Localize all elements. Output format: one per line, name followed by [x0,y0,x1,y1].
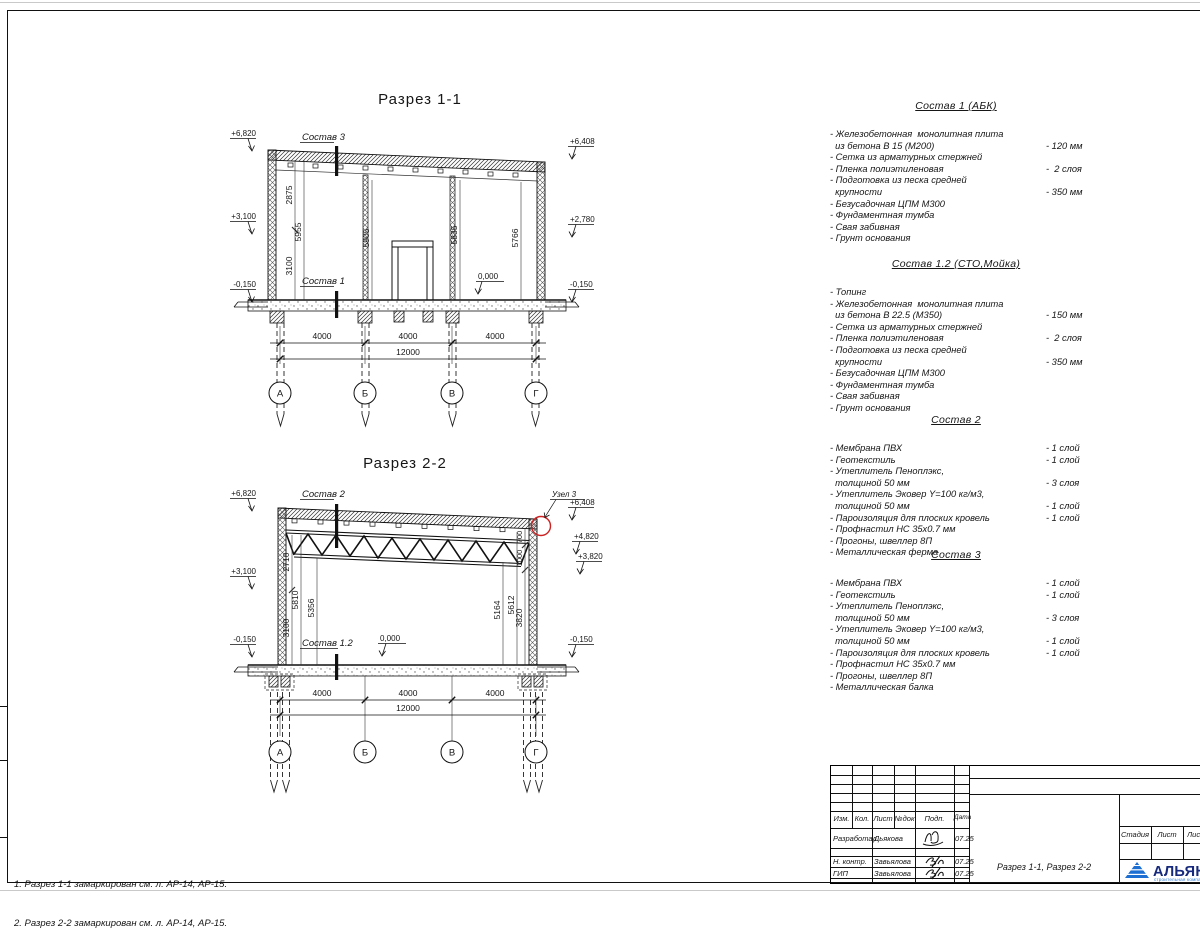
elevation-label: -0,150 [233,635,256,644]
spec-item-text: - Прогоны, швеллер 8П [830,671,932,681]
spec-item-text: толщиной 50 мм [830,501,910,511]
spec-item-text: - Утеплитель Эковер Y=100 кг/м3, [830,624,984,634]
tb-col-podp: Подп. [915,814,954,823]
spec-row: - Железобетонная монолитная плита [830,129,1082,141]
spec-row: - Геотекстиль- 1 слой [830,455,1082,467]
spec-row: толщиной 50 мм- 3 слоя [830,478,1082,490]
axis-label: Г [533,389,538,400]
spec-row: - Топинг [830,287,1082,299]
door-opening [392,241,433,300]
elevation-label: -0,150 [570,280,593,289]
spec-row: - Подготовка из песка средней [830,175,1082,187]
composition-flag-label: Состав 1.2 [302,638,354,649]
spec-row: - Прогоны, швеллер 8П [830,671,1082,683]
spec-row: - Сетка из арматурных стержней [830,322,1082,334]
elevation-label: +6,408 [570,137,595,146]
spec-item-text: - Подготовка из песка средней [830,175,967,185]
dim-label: 5835 [449,225,459,244]
spec-item-text: - Сетка из арматурных стержней [830,152,982,162]
spec-item-text: крупности [830,187,882,197]
roof-slab [268,150,545,172]
tb-role: Н. контр. [833,857,867,866]
dim-label: 700 [515,531,524,544]
frame-top [7,10,1200,11]
frame-tick [0,837,7,838]
tb-sheets-total: Листов [1187,830,1200,839]
spec-item-text: - Металлическая балка [830,682,934,692]
flag-bar [335,291,338,318]
drawing-sheet: { "section1": { "title": "Разрез 1-1", "… [0,0,1200,900]
spec-item-text: - Свая забивная [830,391,900,401]
dim-label: 1000 [515,550,524,567]
elevation-label: 0,000 [380,634,401,643]
dim-label: 4000 [313,688,332,698]
spec-item-value: - 3 слоя [1046,478,1079,490]
dim-label: 3820 [514,608,524,627]
spec-item-text: - Железобетонная монолитная плита [830,129,1003,139]
section-2-title: Разрез 2-2 [363,455,447,472]
spec-item-text: - Утеплитель Эковер Y=100 кг/м3, [830,489,984,499]
tb-role: ГИП [833,869,848,878]
elevation-label: +6,820 [231,489,256,498]
dim-label: 5955 [293,222,303,241]
spec-sostav-1-2: Состав 1.2 (СТО,Мойка) - Топинг- Железоб… [830,258,1082,415]
tb-name: Завьялова [874,869,911,878]
spec-row: из бетона В 15 (М200)- 120 мм [830,141,1082,153]
pile-tips [271,780,543,792]
section-2-2-drawing: Разрез 2-2 Узел 3 [220,450,650,822]
spec-title: Состав 3 [830,549,1082,561]
tb-col-data: Дата [954,814,969,821]
spec-item-text: - Железобетонная монолитная плита [830,299,1003,309]
spec-row: - Профнастил НС 35х0.7 мм [830,659,1082,671]
spec-row: - Мембрана ПВХ- 1 слой [830,443,1082,455]
frame-left [7,10,8,882]
spec-item-text: - Фундаментная тумба [830,380,934,390]
spec-item-value: - 350 мм [1046,187,1083,199]
elevation-label: 0,000 [478,272,499,281]
axis-label: В [449,389,455,400]
spec-item-text: - Безусадочная ЦПМ М300 [830,368,945,378]
spec-item-text: - Утеплитель Пеноплэкс, [830,601,944,611]
tb-role: Разработал [833,834,877,843]
spec-item-text: - Утеплитель Пеноплэкс, [830,466,944,476]
tb-date: 07.25 [955,834,974,843]
logo-triangle-icon [1123,862,1151,878]
spec-row: - Пленка полиэтиленовая- 2 слоя [830,333,1082,345]
spec-list: - Мембрана ПВХ- 1 слой- Геотекстиль- 1 с… [830,443,1082,559]
wall-left [278,508,286,665]
spec-item-value: - 1 слой [1046,648,1080,660]
axis-label: В [449,748,455,759]
spec-row: - Утеплитель Эковер Y=100 кг/м3, [830,624,1082,636]
spec-item-text: - Сетка из арматурных стержней [830,322,982,332]
spec-row: - Металлическая балка [830,682,1082,694]
spec-item-value: - 2 слоя [1046,333,1082,345]
note-line: 2. Разрез 2-2 замаркирован см. л. АР-14,… [14,917,227,930]
pile-caps [270,311,543,323]
spec-item-text: - Пароизоляция для плоских кровель [830,513,990,523]
tb-doc-title: Разрез 1-1, Разрез 2-2 [969,862,1119,872]
spec-item-text: - Пароизоляция для плоских кровель [830,648,990,658]
spec-item-text: - Мембрана ПВХ [830,443,902,453]
spec-row: - Пароизоляция для плоских кровель- 1 сл… [830,648,1082,660]
spec-item-text: - Пленка полиэтиленовая [830,333,944,343]
spec-list: - Мембрана ПВХ- 1 слой- Геотекстиль- 1 с… [830,578,1082,694]
elevation-label: +2,780 [570,215,595,224]
dim-label: 5164 [492,600,502,619]
spec-item-text: - Геотекстиль [830,455,896,465]
spec-title: Состав 1.2 (СТО,Мойка) [830,258,1082,270]
spec-row: - Мембрана ПВХ- 1 слой [830,578,1082,590]
dim-label: 5810 [290,590,300,609]
spec-item-text: из бетона В 15 (М200) [830,141,934,151]
spec-item-text: - Прогоны, швеллер 8П [830,536,932,546]
spec-item-value: - 1 слой [1046,501,1080,513]
composition-flag-label: Состав 2 [302,489,346,500]
spec-row: - Пленка полиэтиленовая- 2 слоя [830,164,1082,176]
spec-row: - Утеплитель Пеноплэкс, [830,601,1082,613]
frame-tick [0,706,7,707]
elevation-label: -0,150 [570,635,593,644]
spec-row: крупности- 350 мм [830,187,1082,199]
spec-item-text: - Геотекстиль [830,590,896,600]
section-1-1-drawing: Разрез 1-1 [220,80,650,452]
composition-flag-label: Состав 3 [302,132,346,143]
flag-bar [335,504,338,548]
spec-row: - Фундаментная тумба [830,210,1082,222]
tb-col-list: Лист [872,814,894,823]
spec-sostav-3: Состав 3 - Мембрана ПВХ- 1 слой- Геотекс… [830,549,1082,694]
spec-item-value: - 1 слой [1046,636,1080,648]
sheet-top-edge [0,2,1200,3]
spec-item-text: крупности [830,357,882,367]
dim-label: 3100 [284,256,294,275]
spec-item-text: - Профнастил НС 35х0.7 мм [830,659,955,669]
composition-flag-label: Состав 1 [302,276,345,287]
spec-title: Состав 1 (АБК) [830,100,1082,112]
spec-row: - Профнастил НС 35х0.7 мм [830,524,1082,536]
spec-item-text: - Топинг [830,287,866,297]
dim-label: 5905 [361,228,371,247]
spec-item-value: - 350 мм [1046,357,1083,369]
spec-row: - Грунт основания [830,233,1082,245]
axis-bubbles: А Б В Г [269,741,547,763]
pile-caps [269,676,543,687]
dim-label: 4000 [313,331,332,341]
spec-row: - Безусадочная ЦПМ М300 [830,368,1082,380]
spec-item-text: толщиной 50 мм [830,636,910,646]
spec-row: - Свая забивная [830,391,1082,403]
spec-item-value: - 1 слой [1046,590,1080,602]
dim-total-label: 12000 [396,347,420,357]
tb-col-ndok: №док [894,814,915,823]
spec-item-text: - Грунт основания [830,233,910,243]
spec-list: - Топинг- Железобетонная монолитная плит… [830,287,1082,415]
spec-item-text: - Безусадочная ЦПМ М300 [830,199,945,209]
dim-label: 4000 [399,688,418,698]
spec-row: толщиной 50 мм- 1 слой [830,501,1082,513]
frame-tick [0,760,7,761]
elevation-label: +4,820 [574,532,599,541]
spec-sostav-2: Состав 2 - Мембрана ПВХ- 1 слой- Геотекс… [830,414,1082,559]
title-block: Изм. Кол. Лист №док Подп. Дата Разработа… [830,765,1200,884]
signature-dyakova [921,828,951,847]
spec-item-text: - Профнастил НС 35х0.7 мм [830,524,955,534]
spec-list: - Железобетонная монолитная плита из бет… [830,129,1082,245]
spec-item-text: - Подготовка из песка средней [830,345,967,355]
elevation-label: -0,150 [233,280,256,289]
dim-total-label: 12000 [396,703,420,713]
spec-sostav-1: Состав 1 (АБК) - Железобетонная монолитн… [830,100,1082,245]
dim-label: 3100 [281,618,291,637]
dim-label: 2875 [284,185,294,204]
axis-label: Г [533,748,538,759]
spec-row: - Утеплитель Эковер Y=100 кг/м3, [830,489,1082,501]
section-1-title: Разрез 1-1 [378,91,462,108]
tb-sheet: Лист [1151,830,1183,839]
floor-slab [248,300,566,311]
spec-item-text: - Свая забивная [830,222,900,232]
spec-row: - Безусадочная ЦПМ М300 [830,199,1082,211]
spec-title: Состав 2 [830,414,1082,426]
spec-row: - Утеплитель Пеноплэкс, [830,466,1082,478]
elevation-label: +3,100 [231,212,256,221]
spec-row: - Прогоны, швеллер 8П [830,536,1082,548]
wall-right [529,519,537,665]
spec-item-text: - Грунт основания [830,403,910,413]
spec-item-value: - 3 слоя [1046,613,1079,625]
axis-label: Б [362,389,368,400]
signature-zavyalova [923,867,953,880]
note-line: 1. Разрез 1-1 замаркирован см. л. АР-14,… [14,878,227,891]
dim-label: 5356 [306,598,316,617]
spec-item-value: - 1 слой [1046,578,1080,590]
spec-item-value: - 1 слой [1046,443,1080,455]
tb-name: Завьялова [874,857,911,866]
dim-label: 5766 [510,228,520,247]
spec-item-text: толщиной 50 мм [830,478,910,488]
axis-label: Б [362,748,368,759]
spec-row: толщиной 50 мм- 3 слоя [830,613,1082,625]
spec-item-text: - Фундаментная тумба [830,210,934,220]
elevation-label: +3,100 [231,567,256,576]
spec-item-text: - Мембрана ПВХ [830,578,902,588]
dim-label: 4000 [486,331,505,341]
dim-label: 4000 [399,331,418,341]
spec-item-value: - 120 мм [1046,141,1083,153]
spec-item-text: из бетона В 22.5 (М350) [830,310,942,320]
tb-name: Дьякова [874,834,903,843]
axis-label: А [277,748,284,759]
pile-tips [277,414,539,426]
dim-label: 4000 [486,688,505,698]
elevation-label: +6,408 [570,498,595,507]
tb-col-izm: Изм. [831,814,852,823]
spec-row: - Пароизоляция для плоских кровель- 1 сл… [830,513,1082,525]
spec-row: - Свая забивная [830,222,1082,234]
wall-left [268,150,276,300]
spec-item-value: - 1 слой [1046,513,1080,525]
spec-row: - Грунт основания [830,403,1082,415]
dim-label: 2710 [281,552,291,571]
elevation-label: +6,820 [231,129,256,138]
spec-item-value: - 2 слоя [1046,164,1082,176]
spec-row: - Сетка из арматурных стержней [830,152,1082,164]
spec-row: толщиной 50 мм- 1 слой [830,636,1082,648]
wall-right [537,162,545,300]
company-subtitle: строительная компания [1154,877,1200,882]
spec-item-value: - 1 слой [1046,455,1080,467]
elevation-label: +3,820 [578,552,603,561]
spec-row: крупности- 350 мм [830,357,1082,369]
axis-bubbles: А Б В Г [269,382,547,404]
spec-row: - Железобетонная монолитная плита [830,299,1082,311]
tb-col-kol: Кол. [852,814,872,823]
spec-row: - Геотекстиль- 1 слой [830,590,1082,602]
roof-slab [278,508,537,529]
spec-row: из бетона В 22.5 (М350)- 150 мм [830,310,1082,322]
spec-item-text: толщиной 50 мм [830,613,910,623]
spec-item-text: - Пленка полиэтиленовая [830,164,944,174]
axis-label: А [277,389,284,400]
spec-item-value: - 150 мм [1046,310,1083,322]
flag-bar [335,146,338,176]
spec-row: - Подготовка из песка средней [830,345,1082,357]
sheet-notes: 1. Разрез 1-1 замаркирован см. л. АР-14,… [14,852,227,943]
spec-row: - Фундаментная тумба [830,380,1082,392]
truss [286,530,529,567]
tb-stage: Стадия [1119,830,1151,839]
flag-bar [335,654,338,680]
